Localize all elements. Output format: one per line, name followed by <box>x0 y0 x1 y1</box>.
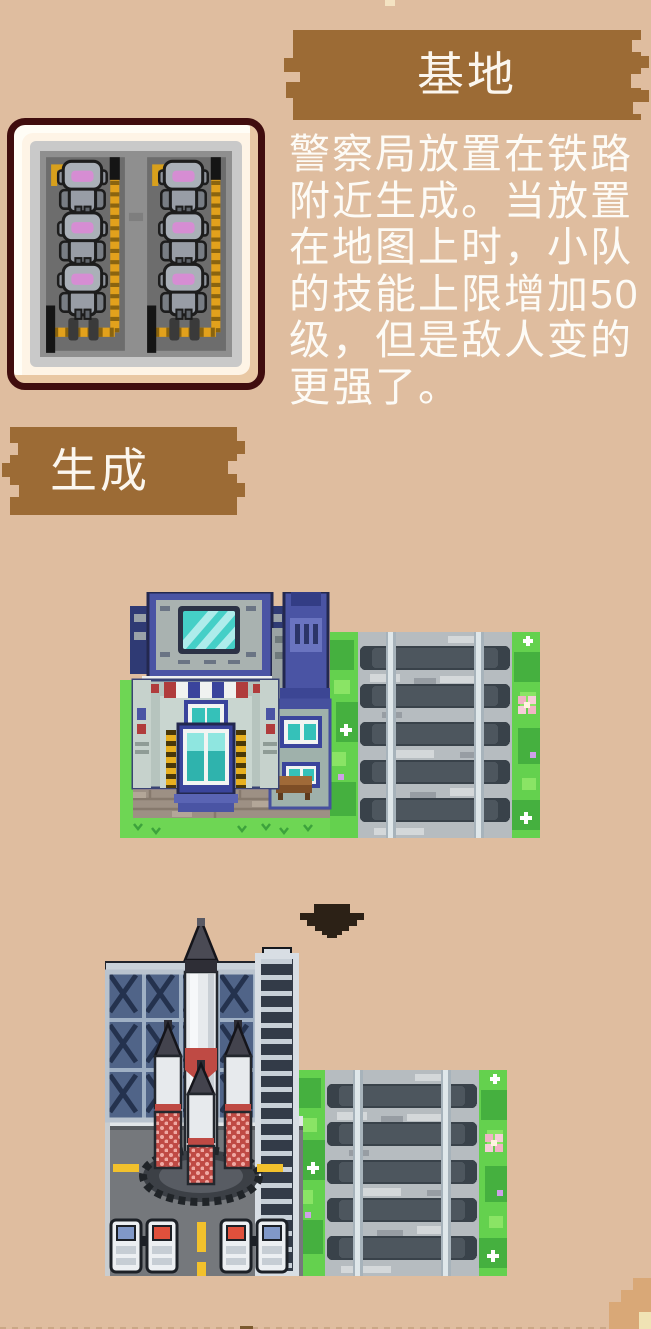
cart <box>147 1220 177 1272</box>
police-station-scene <box>120 592 540 838</box>
banner-notch <box>2 463 10 477</box>
corner-decoration <box>621 1290 633 1329</box>
annex-window <box>280 716 322 748</box>
entrance-door <box>178 724 234 794</box>
top-pixel-decoration <box>385 0 395 6</box>
preview-frame <box>7 118 265 390</box>
steps <box>174 794 238 803</box>
cart <box>221 1220 251 1272</box>
preview-panel <box>30 141 242 367</box>
banner-notch <box>284 58 293 72</box>
banner-notch <box>641 56 649 68</box>
police-station-sprite <box>120 592 330 838</box>
banner-notch <box>293 72 300 82</box>
rocket-launchpad-sprite <box>105 918 303 1276</box>
section-header-base: 基地 <box>293 30 641 120</box>
banner-notch <box>631 74 641 88</box>
banner-notch <box>641 90 649 102</box>
billboard <box>130 592 288 684</box>
cart <box>257 1220 287 1272</box>
corner-decoration <box>609 1302 621 1329</box>
corner-decoration <box>639 1312 651 1329</box>
preview-backdrop <box>40 151 232 357</box>
banner-notch <box>10 443 18 455</box>
cart <box>111 1220 141 1272</box>
banner-notch <box>237 441 245 454</box>
banner-notch <box>633 102 641 114</box>
base-description: 警察局放置在铁路附近生成。当放置在地图上时，小队的技能上限增加50级，但是敌人变… <box>289 131 651 410</box>
section-title-base: 基地 <box>293 30 641 120</box>
game-info-page: 基地 警察局放置在铁路附近生成。当放置在地图上时，小队的技能上限增加50级，但是… <box>0 0 651 1329</box>
banner-notch <box>10 485 19 497</box>
banner-notch <box>286 82 293 98</box>
banner-notch <box>237 483 245 497</box>
awning <box>164 682 248 698</box>
banner-notch <box>228 461 237 474</box>
police-robots-sprite <box>40 151 232 357</box>
section-title-spawn: 生成 <box>10 427 237 515</box>
banner-notch <box>632 40 641 52</box>
section-header-spawn: 生成 <box>10 427 237 515</box>
rocket-launchpad-scene <box>105 918 507 1276</box>
